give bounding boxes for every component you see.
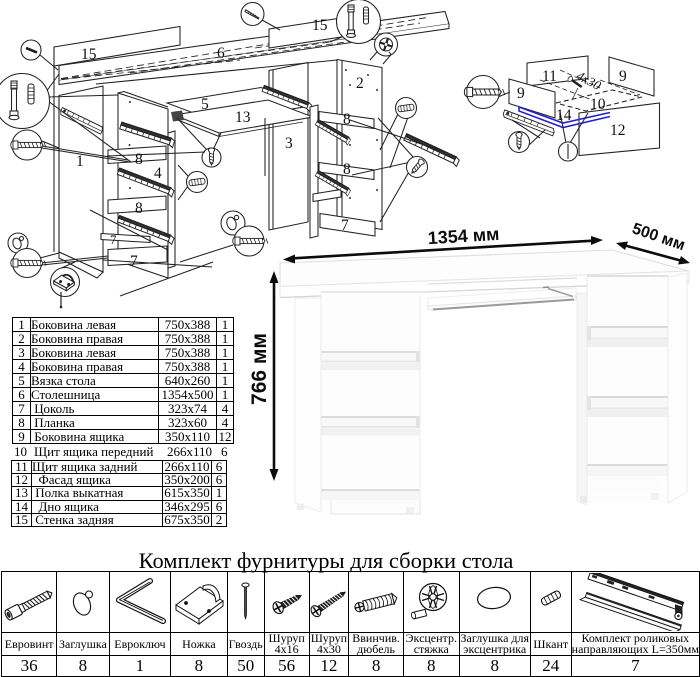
svg-text:15: 15 bbox=[81, 46, 97, 63]
svg-text:7: 7 bbox=[341, 217, 349, 234]
svg-text:4: 4 bbox=[154, 165, 162, 182]
svg-text:13: 13 bbox=[235, 109, 251, 126]
svg-text:7: 7 bbox=[110, 232, 117, 247]
svg-text:12: 12 bbox=[610, 122, 626, 139]
svg-text:5: 5 bbox=[201, 96, 209, 113]
svg-text:4х30: 4х30 bbox=[574, 68, 604, 93]
svg-text:6: 6 bbox=[217, 45, 225, 62]
svg-text:8: 8 bbox=[343, 111, 351, 128]
svg-text:1354 мм: 1354 мм bbox=[427, 224, 500, 248]
svg-text:8: 8 bbox=[135, 200, 143, 217]
svg-text:1: 1 bbox=[76, 153, 84, 170]
svg-text:8: 8 bbox=[135, 151, 143, 168]
svg-text:11: 11 bbox=[542, 68, 557, 85]
svg-text:15: 15 bbox=[312, 17, 328, 34]
svg-text:2: 2 bbox=[356, 75, 364, 92]
svg-text:10: 10 bbox=[590, 96, 606, 113]
svg-text:9: 9 bbox=[619, 68, 627, 85]
svg-text:766 мм: 766 мм bbox=[248, 333, 271, 405]
svg-text:8: 8 bbox=[343, 161, 351, 178]
svg-text:3: 3 bbox=[285, 135, 293, 152]
svg-text:9: 9 bbox=[517, 85, 525, 102]
svg-text:7: 7 bbox=[130, 253, 138, 270]
svg-text:14: 14 bbox=[556, 107, 572, 124]
